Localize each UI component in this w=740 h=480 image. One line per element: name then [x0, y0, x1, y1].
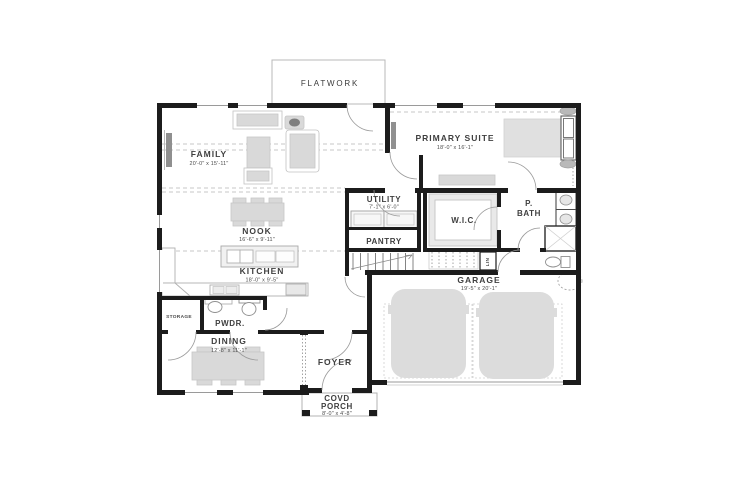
primary-bath-label-1: P. — [525, 199, 533, 208]
toilet — [242, 303, 256, 316]
primary-suite-label: PRIMARY SUITE — [415, 133, 494, 143]
car — [391, 289, 466, 378]
dining-label: DINING — [211, 336, 247, 346]
washer — [351, 211, 384, 228]
flatwork-label: FLATWORK — [301, 79, 359, 88]
toilet — [546, 257, 561, 267]
nightstand — [560, 107, 576, 115]
linen-label: LIN — [485, 257, 491, 266]
utility-dims: 7'-1" x 6'-0" — [369, 205, 399, 211]
tv-icon — [391, 122, 396, 149]
foyer-label: FOYER — [318, 357, 352, 367]
island-sink — [227, 250, 240, 263]
garage-dims: 19'-5" x 20'-1" — [461, 286, 497, 292]
floor-plan: FLATWORK FAMILY 20'-0" x 15'-11" PRIMARY… — [0, 0, 740, 480]
primary-bath-label-2: BATH — [517, 209, 541, 218]
nook-dims: 16'-6" x 9'-11" — [239, 237, 275, 243]
sink — [560, 195, 572, 205]
dresser — [439, 175, 495, 185]
fridge — [286, 284, 306, 295]
porch-label-2: PORCH — [321, 402, 353, 411]
bed — [504, 119, 562, 157]
pillow — [564, 119, 574, 138]
coffee-table — [247, 137, 270, 168]
kitchen-dims: 18'-0" x 9'-5" — [246, 278, 279, 284]
counter-left — [162, 248, 175, 283]
wic-label: W.I.C. — [451, 216, 476, 225]
family-dims: 20'-0" x 15'-11" — [190, 161, 229, 167]
sink — [208, 302, 222, 313]
family-label: FAMILY — [191, 149, 227, 159]
floor-plan-svg: FLATWORK FAMILY 20'-0" x 15'-11" PRIMARY… — [0, 0, 740, 480]
kitchen-label: KITCHEN — [240, 266, 285, 276]
tv-icon — [166, 133, 172, 167]
utility-fixtures — [351, 211, 417, 228]
storage-label: STORAGE — [166, 314, 192, 320]
nook-furniture — [231, 198, 284, 226]
powder-label: PWDR. — [215, 319, 245, 328]
car — [479, 292, 554, 379]
pantry-label: PANTRY — [366, 237, 402, 246]
dining-dims: 12'-8" x 11'-1" — [211, 348, 247, 354]
nightstand — [560, 160, 576, 168]
utility-label: UTILITY — [367, 195, 401, 204]
pillow — [564, 139, 574, 158]
garage-label: GARAGE — [457, 275, 500, 285]
dining-table — [192, 352, 264, 380]
nook-table — [231, 203, 284, 221]
porch-dims: 8'-0" x 4'-8" — [322, 411, 352, 417]
sink — [560, 214, 572, 224]
lamp-icon — [289, 119, 300, 127]
nook-label: NOOK — [242, 226, 272, 236]
primary-suite-dims: 18'-0" x 16'-1" — [437, 145, 473, 151]
